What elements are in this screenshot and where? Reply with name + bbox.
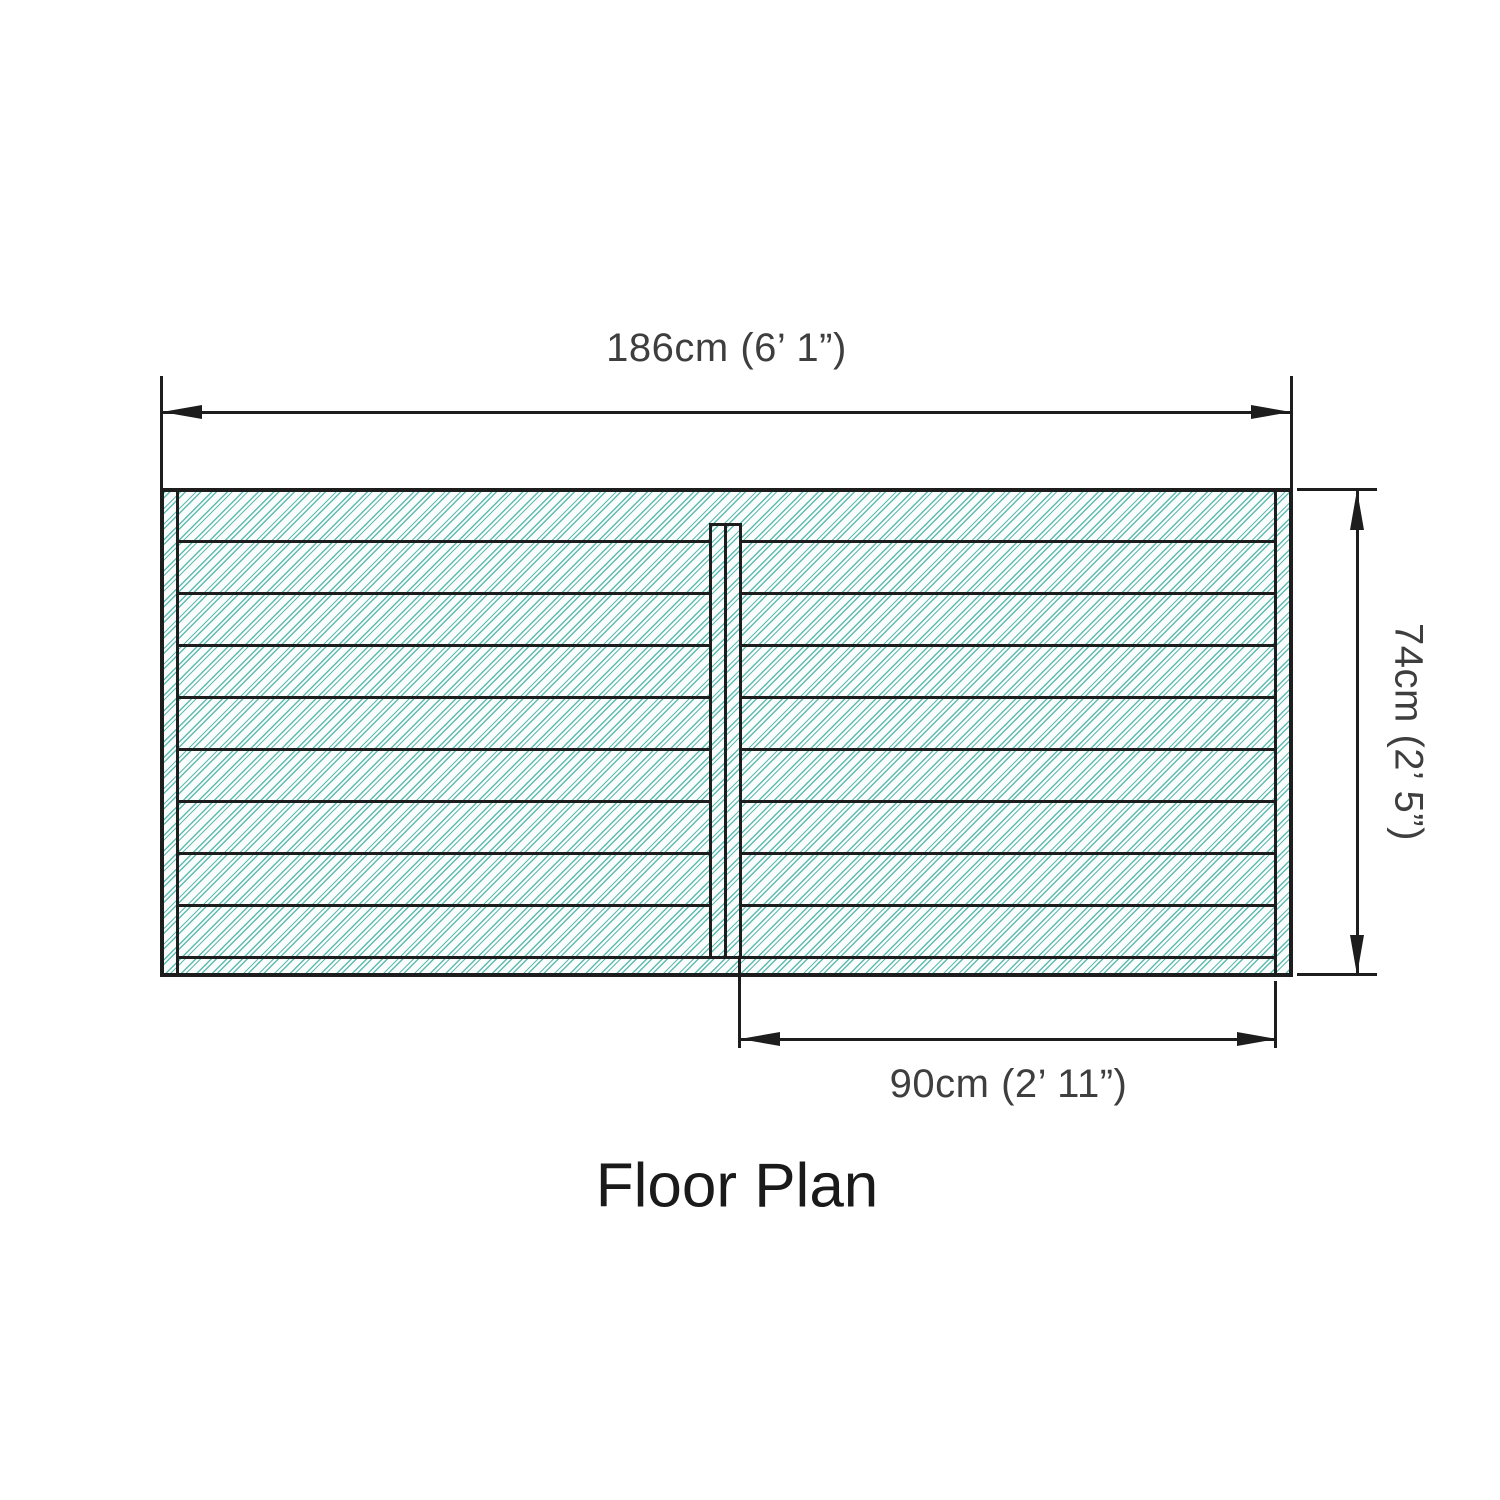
arrowhead-left-icon [740,1032,780,1046]
height-extension-line-top [1297,488,1377,491]
arrowhead-right-icon [1251,405,1291,419]
opening-dimension-line [740,1038,1277,1041]
width-dimension-line [162,411,1291,414]
height-dimension-label: 74cm (2’ 5”) [1386,623,1431,841]
floor-plan-diagram: 186cm (6’ 1”) 74cm (2’ 5”) 90cm (2’ 11”)… [0,0,1500,1500]
height-dimension-line [1356,490,1359,975]
left-edge-strip-line [176,492,179,973]
diagram-title: Floor Plan [596,1151,879,1222]
right-edge-strip-line [1274,492,1277,973]
opening-dimension-label: 90cm (2’ 11”) [740,1062,1277,1107]
arrowhead-left-icon [162,405,202,419]
plan-outline [160,488,1293,977]
arrowhead-right-icon [1237,1032,1277,1046]
arrowhead-up-icon [1350,490,1364,530]
width-extension-line-right [1290,376,1293,488]
width-dimension-label: 186cm (6’ 1”) [162,326,1291,371]
width-extension-line-left [160,376,163,488]
height-extension-line-bottom [1297,973,1377,976]
center-divider [709,523,742,959]
arrowhead-down-icon [1350,935,1364,975]
